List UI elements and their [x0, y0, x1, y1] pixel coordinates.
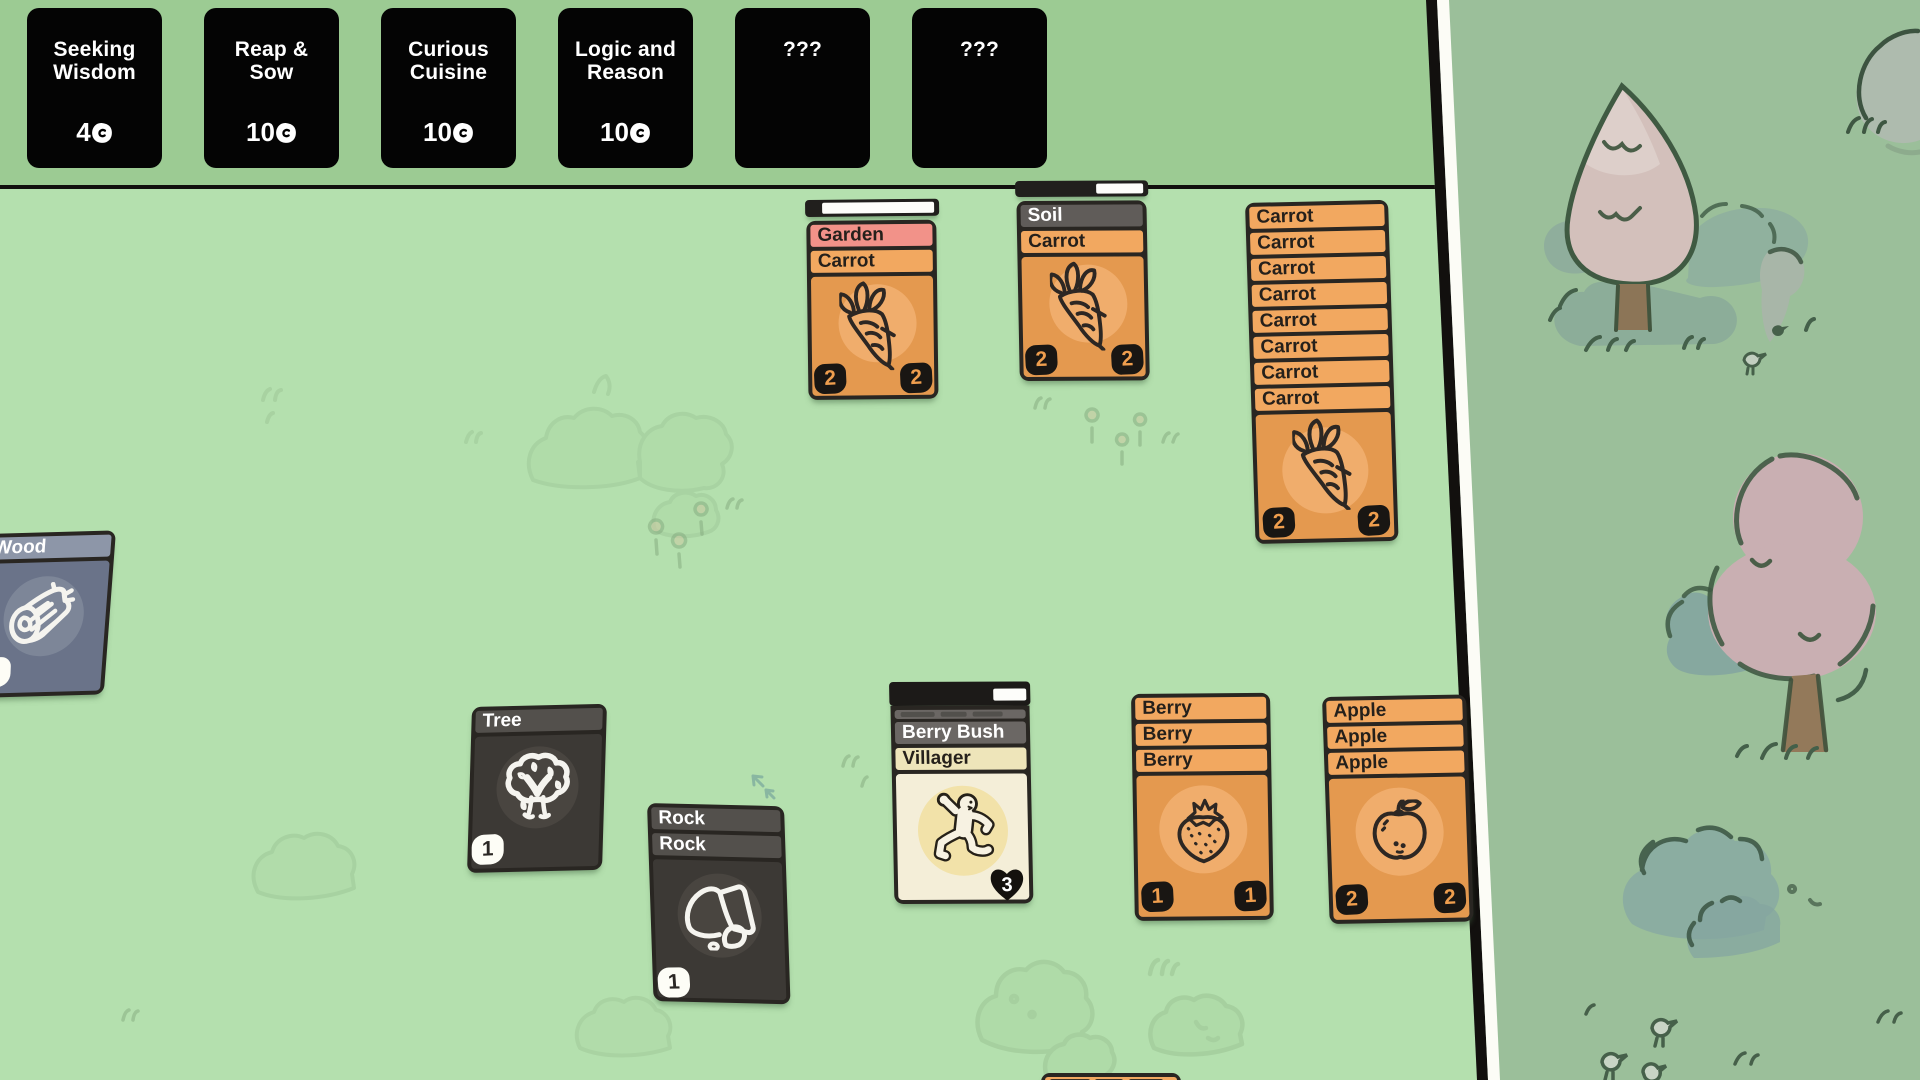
svg-text:3: 3 — [1001, 874, 1013, 896]
